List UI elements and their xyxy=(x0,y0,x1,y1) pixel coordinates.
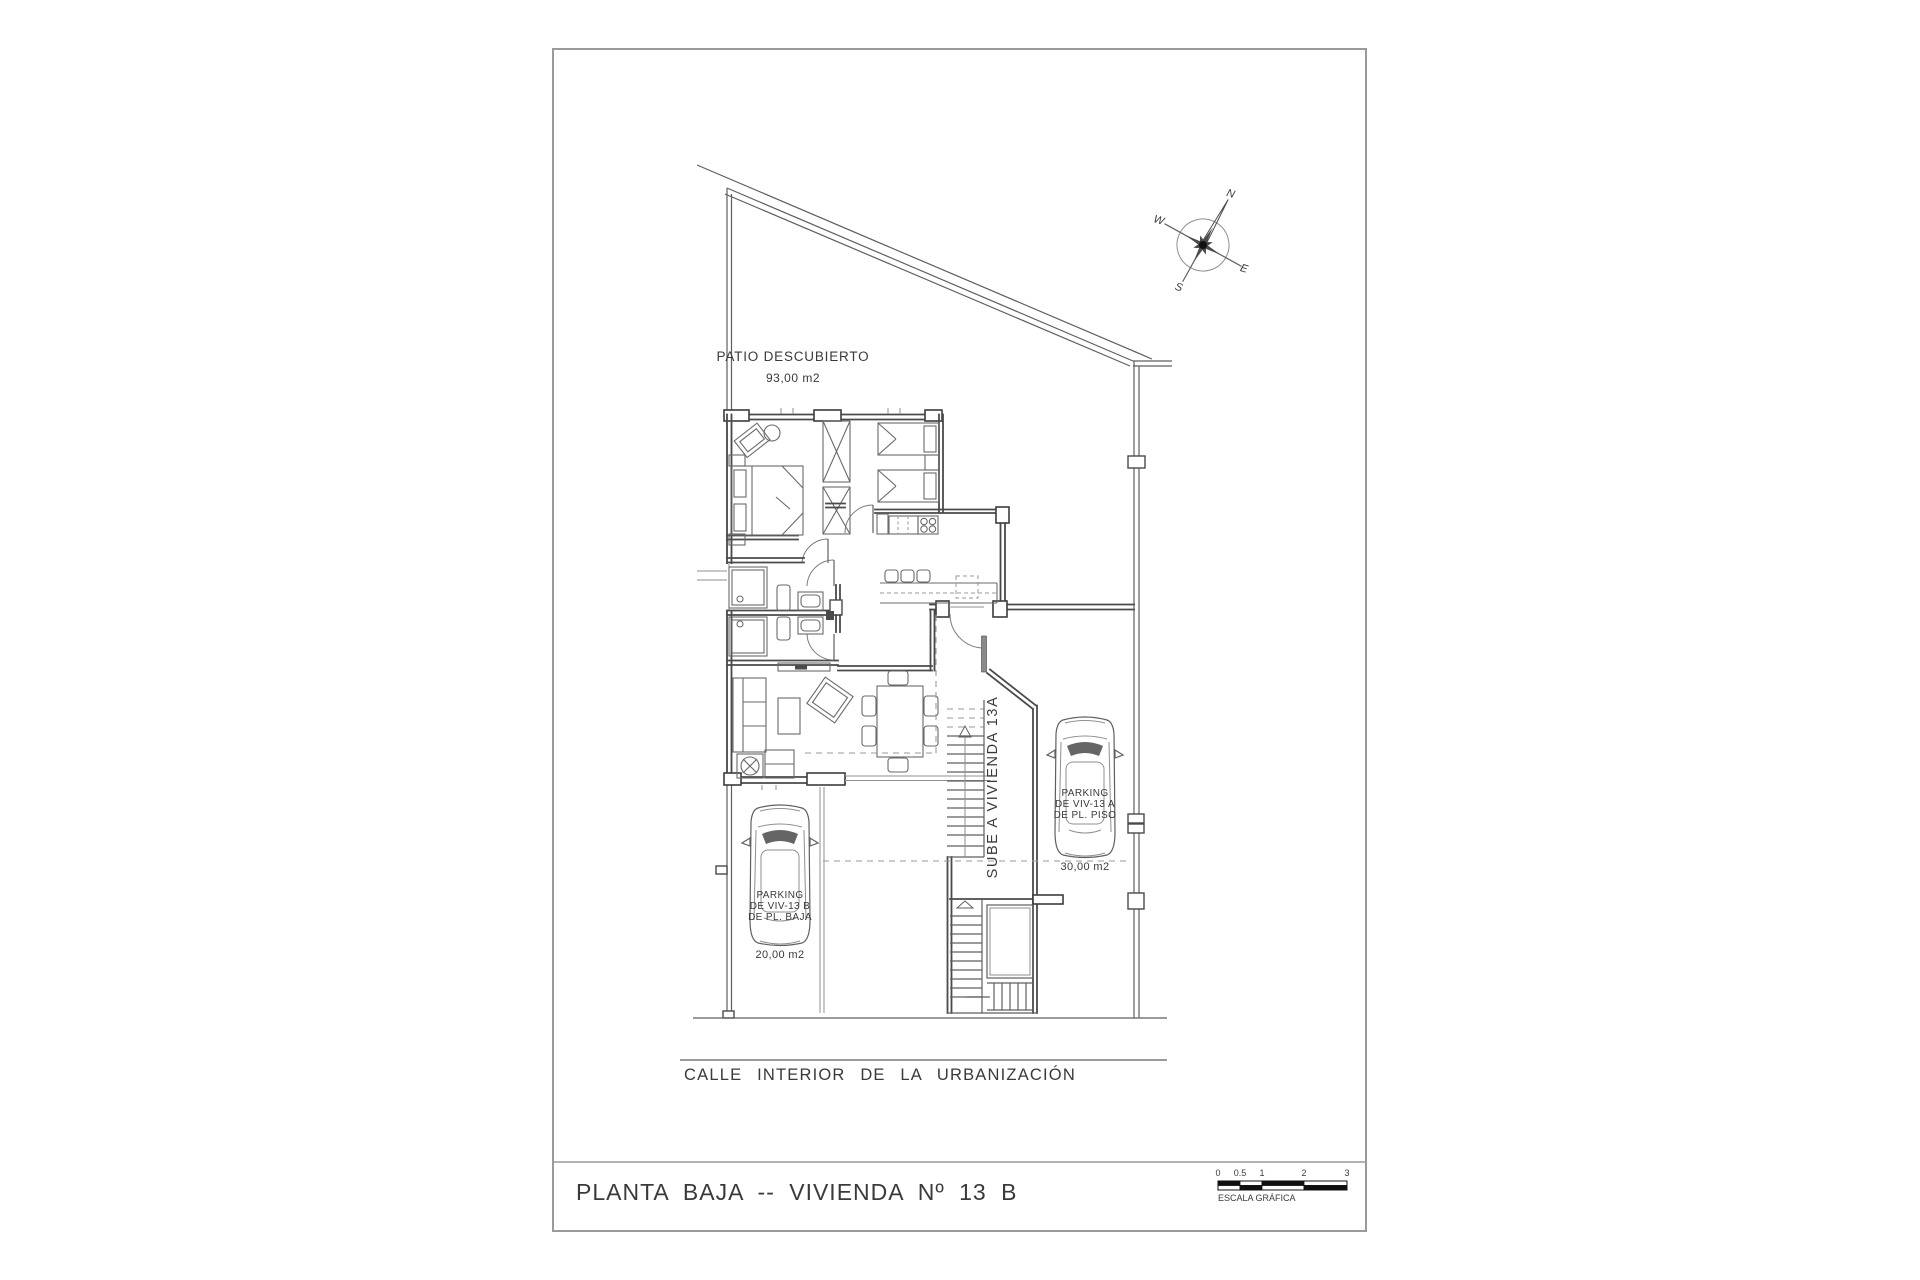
scale-label: ESCALA GRÁFICA xyxy=(1218,1193,1296,1203)
parking-13b-line3: DE PL. BAJA xyxy=(748,912,812,923)
scale-bar-icon xyxy=(1218,1181,1347,1190)
title-block: PLANTA BAJA -- VIVIENDA Nº 13 B xyxy=(576,1179,1017,1205)
patio-area: 93,00 m2 xyxy=(766,371,820,385)
floor-plan-sheet: N E S W CALLE INTERIOR DE LA URBANIZACIÓ… xyxy=(0,0,1920,1280)
parking-13a-line2: DE VIV-13 A xyxy=(1055,799,1115,810)
scale-tick-1: 1 xyxy=(1259,1168,1264,1178)
scale-tick-2: 2 xyxy=(1301,1168,1306,1178)
parking-13a-line1: PARKING xyxy=(1061,788,1108,799)
stairs-label: SUBE A VIVIENDA 13A xyxy=(985,696,1001,879)
scale-tick-05: 0.5 xyxy=(1234,1168,1247,1178)
street-label: CALLE INTERIOR DE LA URBANIZACIÓN xyxy=(684,1065,1076,1084)
parking-13b-area: 20,00 m2 xyxy=(755,949,804,961)
patio-name: PATIO DESCUBIERTO xyxy=(717,349,870,364)
parking-13a-line3: DE PL. PISO xyxy=(1054,810,1117,821)
parking-13a-area: 30,00 m2 xyxy=(1060,861,1109,873)
scale-tick-0: 0 xyxy=(1215,1168,1220,1178)
page: N E S W CALLE INTERIOR DE LA URBANIZACIÓ… xyxy=(0,0,1920,1280)
sheet-frame xyxy=(553,49,1366,1231)
scale-tick-3: 3 xyxy=(1344,1168,1349,1178)
parking-13b-line2: DE VIV-13 B xyxy=(750,901,811,912)
parking-13b-line1: PARKING xyxy=(756,890,803,901)
sheet-title: PLANTA BAJA -- VIVIENDA Nº 13 B xyxy=(576,1179,1017,1205)
